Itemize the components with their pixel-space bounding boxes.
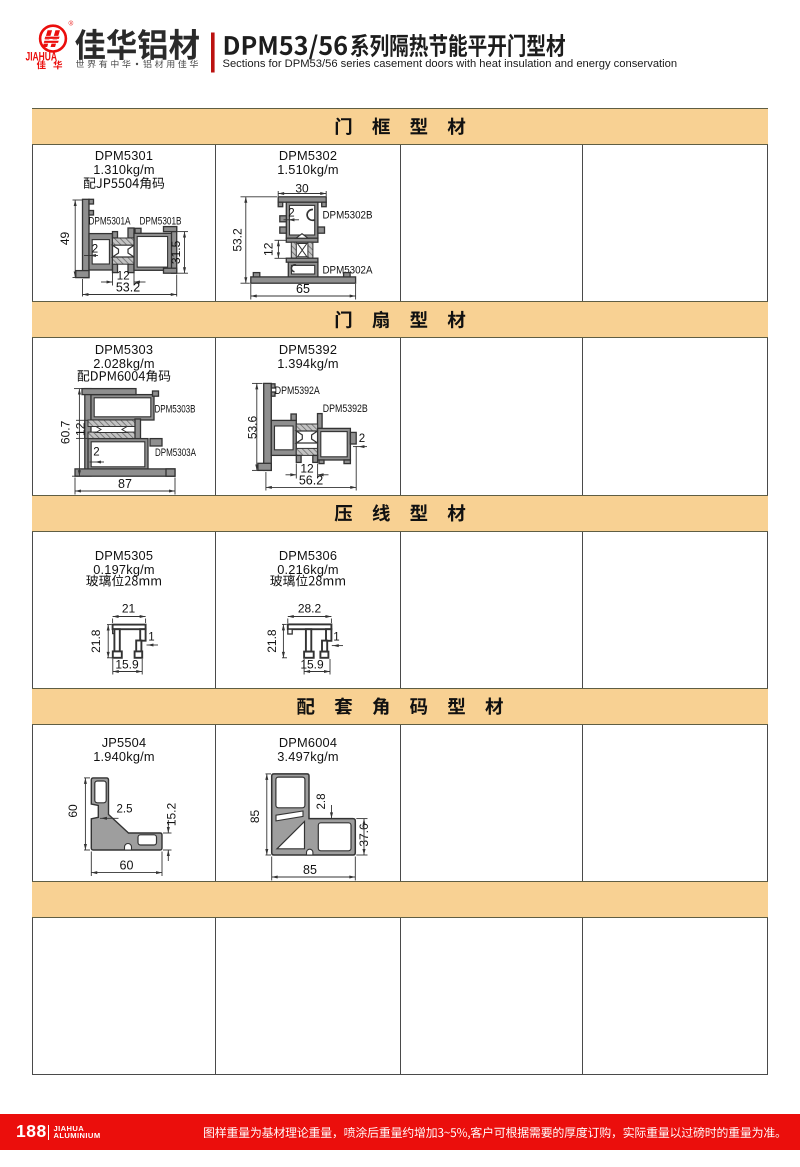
svg-text:65: 65 <box>296 282 310 296</box>
svg-text:DPM5301A: DPM5301A <box>89 216 131 228</box>
svg-text:DPM5392A: DPM5392A <box>275 385 321 397</box>
svg-text:15.2: 15.2 <box>165 802 179 826</box>
svg-text:15.9: 15.9 <box>115 658 139 672</box>
svg-text:49: 49 <box>58 232 72 246</box>
svg-text:DPM5303A: DPM5303A <box>155 447 196 459</box>
svg-text:53.2: 53.2 <box>116 281 140 295</box>
svg-text:60: 60 <box>66 804 80 818</box>
svg-text:53.6: 53.6 <box>246 415 260 439</box>
svg-text:2: 2 <box>92 244 98 256</box>
svg-text:DPM5392B: DPM5392B <box>323 403 368 415</box>
svg-text:60.7: 60.7 <box>59 420 73 444</box>
svg-text:DPM5303B: DPM5303B <box>155 404 196 416</box>
svg-text:31.5: 31.5 <box>169 240 183 264</box>
svg-text:28.2: 28.2 <box>298 602 322 616</box>
svg-text:12: 12 <box>74 422 88 436</box>
svg-text:85: 85 <box>248 810 262 824</box>
svg-text:1: 1 <box>148 632 154 644</box>
svg-text:12: 12 <box>262 242 276 256</box>
svg-text:15.9: 15.9 <box>300 658 324 672</box>
svg-text:60: 60 <box>120 859 134 873</box>
svg-text:53.2: 53.2 <box>231 228 245 252</box>
svg-text:21: 21 <box>122 602 136 616</box>
svg-text:21.8: 21.8 <box>265 629 279 653</box>
svg-text:21.8: 21.8 <box>89 629 103 653</box>
svg-text:2.8: 2.8 <box>316 794 328 810</box>
svg-text:2: 2 <box>288 208 294 220</box>
svg-text:56.2: 56.2 <box>299 473 323 487</box>
svg-text:1: 1 <box>333 632 339 644</box>
svg-text:DPM5301B: DPM5301B <box>140 216 182 228</box>
svg-text:2: 2 <box>359 433 365 445</box>
svg-text:2.5: 2.5 <box>117 804 133 816</box>
svg-text:87: 87 <box>118 477 132 491</box>
svg-text:2: 2 <box>93 447 99 459</box>
svg-text:DPM5302B: DPM5302B <box>323 210 373 222</box>
svg-text:85: 85 <box>303 863 317 877</box>
svg-text:®: ® <box>69 20 74 28</box>
